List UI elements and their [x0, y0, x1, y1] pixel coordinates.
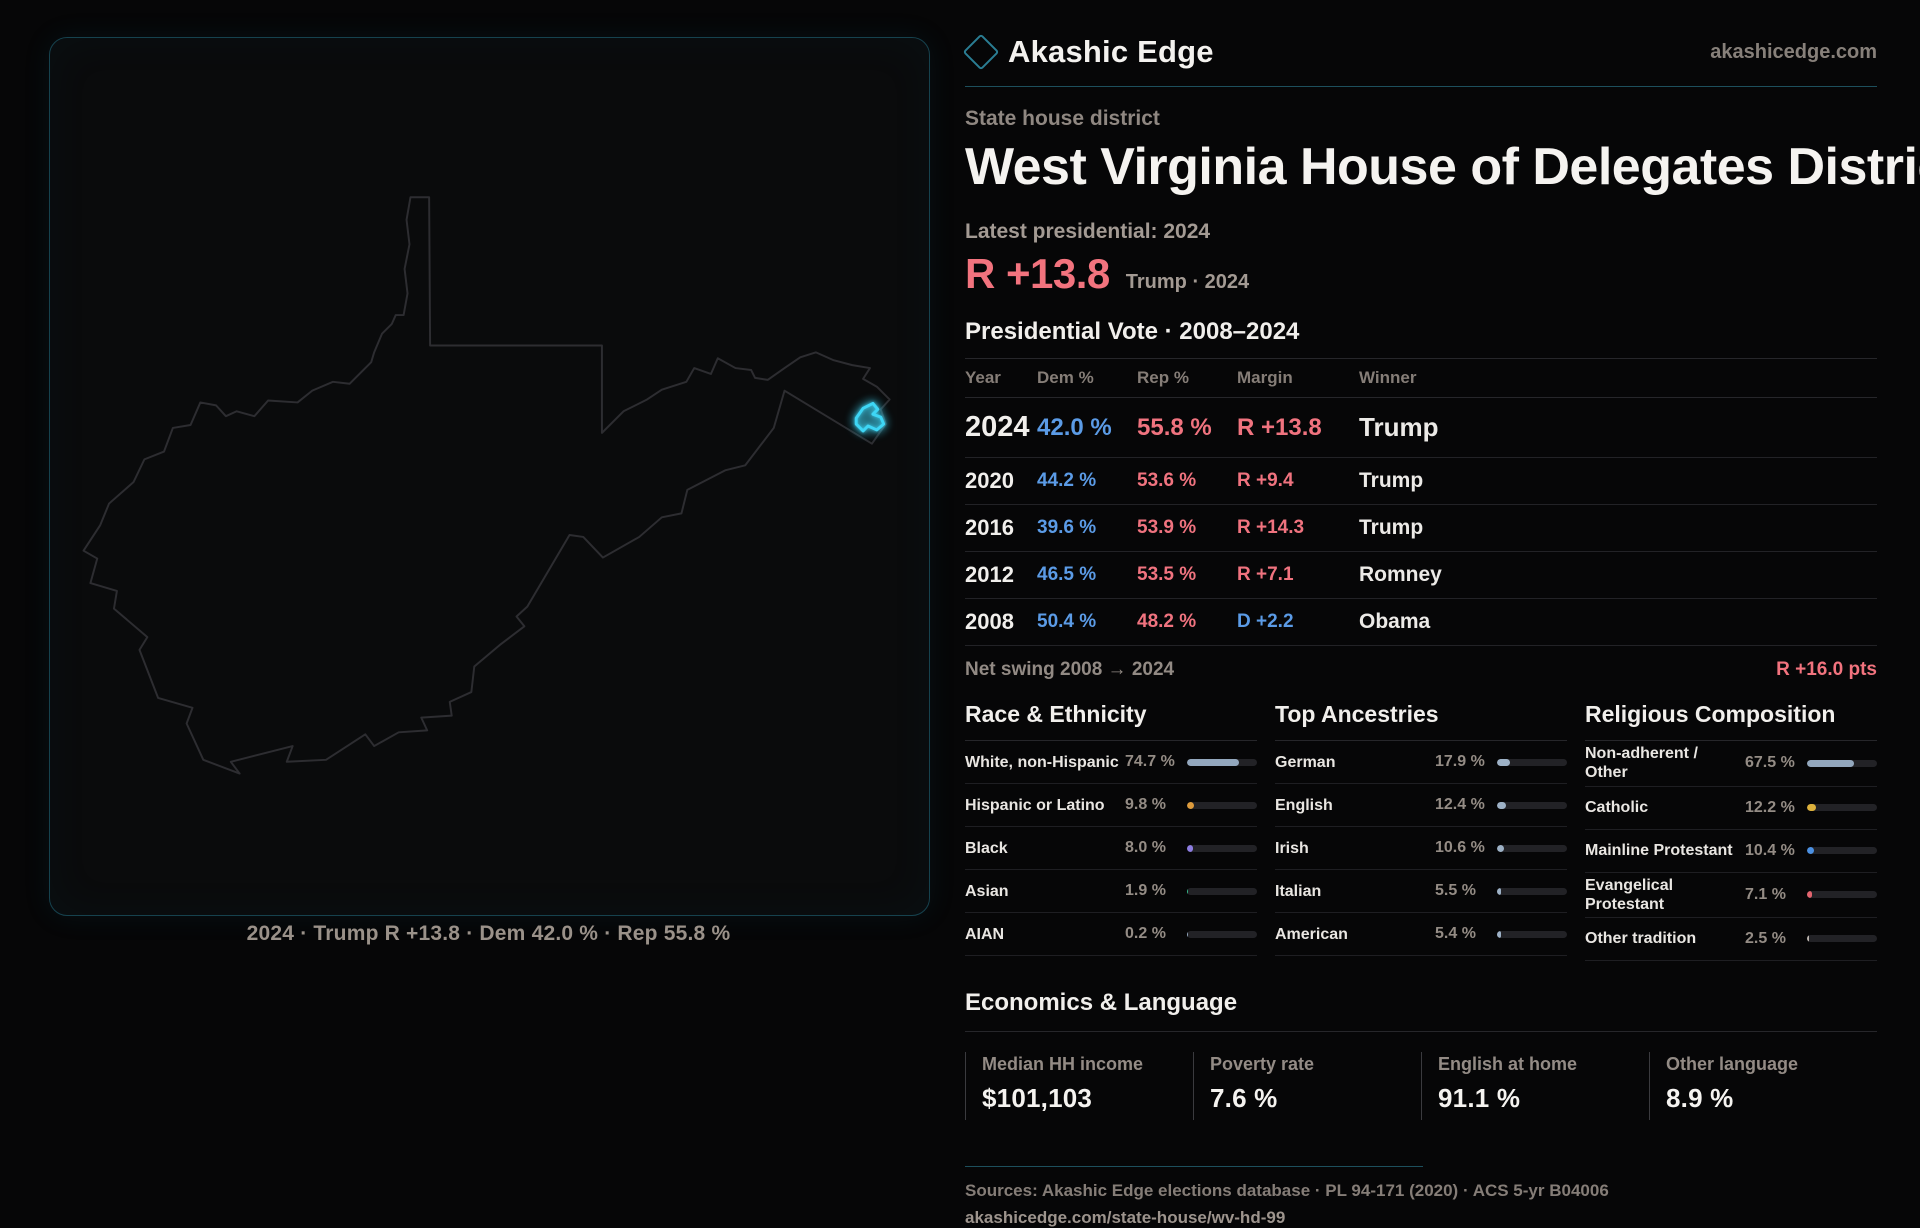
stat-value: 7.6 %	[1210, 1083, 1421, 1114]
progress-track	[1497, 759, 1567, 766]
winner-cell: Romney	[1359, 563, 1877, 587]
rep-cell: 53.5 %	[1137, 564, 1237, 586]
demo-row: Asian 1.9 %	[965, 870, 1257, 913]
demo-label: Italian	[1275, 882, 1435, 901]
margin-cell: R +9.4	[1237, 470, 1359, 492]
progress-track	[1187, 888, 1257, 895]
highlighted-district[interactable]	[856, 403, 883, 430]
table-header-row: Year Dem % Rep % Margin Winner	[965, 358, 1877, 398]
header: Akashic Edge akashicedge.com	[965, 0, 1877, 70]
col-year: Year	[965, 368, 1037, 388]
progress-track	[1187, 931, 1257, 938]
demo-row: Other tradition 2.5 %	[1585, 918, 1877, 961]
progress-fill	[1187, 759, 1239, 766]
progress-track	[1187, 802, 1257, 809]
col-rep: Rep %	[1137, 368, 1237, 388]
progress-track	[1497, 931, 1567, 938]
progress-track	[1807, 935, 1877, 942]
table-row-2024: 2024 42.0 % 55.8 % R +13.8 Trump	[965, 398, 1877, 458]
header-divider	[965, 86, 1877, 87]
table-row-2016: 2016 39.6 % 53.9 % R +14.3 Trump	[965, 505, 1877, 552]
margin-cell: D +2.2	[1237, 611, 1359, 633]
demo-value: 67.5 %	[1745, 754, 1807, 772]
margin-cell: R +14.3	[1237, 517, 1359, 539]
demo-row: Mainline Protestant 10.4 %	[1585, 830, 1877, 873]
demo-row: Catholic 12.2 %	[1585, 787, 1877, 830]
demo-label: Black	[965, 839, 1125, 858]
stat-poverty-rate: Poverty rate 7.6 %	[1193, 1052, 1421, 1120]
race-heading: Race & Ethnicity	[965, 693, 1257, 741]
demo-row: Non-adherent / Other 67.5 %	[1585, 741, 1877, 786]
latest-presidential-label: Latest presidential: 2024	[965, 220, 1920, 244]
year-cell: 2024	[965, 411, 1037, 444]
winner-cell: Trump	[1359, 412, 1877, 443]
ancestries-column: Top Ancestries German 17.9 % English 12.…	[1275, 693, 1567, 961]
stat-value: 8.9 %	[1666, 1083, 1877, 1114]
net-swing-label: Net swing 2008 → 2024	[965, 659, 1174, 681]
demographics-section: Race & Ethnicity White, non-Hispanic 74.…	[965, 693, 1877, 961]
demo-label: Asian	[965, 882, 1125, 901]
demo-row: Hispanic or Latino 9.8 %	[965, 784, 1257, 827]
progress-fill	[1497, 802, 1506, 809]
district-type-kicker: State house district	[965, 107, 1920, 131]
rep-cell: 55.8 %	[1137, 414, 1237, 442]
diamond-icon	[963, 34, 1000, 71]
progress-fill	[1807, 804, 1816, 811]
demo-value: 7.1 %	[1745, 886, 1807, 904]
state-outline	[84, 197, 890, 773]
brand-name: Akashic Edge	[1008, 34, 1214, 70]
religion-column: Religious Composition Non-adherent / Oth…	[1585, 693, 1877, 961]
demo-row: Irish 10.6 %	[1275, 827, 1567, 870]
margin-cell: R +7.1	[1237, 564, 1359, 586]
dem-cell: 46.5 %	[1037, 564, 1137, 586]
stat-value: 91.1 %	[1438, 1083, 1649, 1114]
demo-value: 10.4 %	[1745, 842, 1807, 860]
progress-track	[1807, 847, 1877, 854]
demo-label: American	[1275, 925, 1435, 944]
progress-fill	[1807, 760, 1854, 767]
demo-value: 74.7 %	[1125, 753, 1187, 771]
margin-cell: R +13.8	[1237, 414, 1359, 442]
rep-cell: 53.9 %	[1137, 517, 1237, 539]
religion-heading: Religious Composition	[1585, 693, 1877, 741]
dem-cell: 39.6 %	[1037, 517, 1137, 539]
dem-cell: 44.2 %	[1037, 470, 1137, 492]
col-winner: Winner	[1359, 368, 1877, 388]
economics-heading: Economics & Language	[965, 989, 1877, 1032]
margin-note: Trump · 2024	[1126, 271, 1249, 294]
race-ethnicity-column: Race & Ethnicity White, non-Hispanic 74.…	[965, 693, 1257, 961]
col-dem: Dem %	[1037, 368, 1137, 388]
progress-fill	[1497, 759, 1510, 766]
table-row-2012: 2012 46.5 % 53.5 % R +7.1 Romney	[965, 552, 1877, 599]
winner-cell: Obama	[1359, 610, 1877, 634]
progress-fill	[1807, 847, 1814, 854]
stat-label: English at home	[1438, 1054, 1649, 1075]
progress-track	[1497, 845, 1567, 852]
demo-label: Irish	[1275, 839, 1435, 858]
demo-value: 2.5 %	[1745, 930, 1807, 948]
margin-value: R +13.8	[965, 250, 1110, 298]
rep-cell: 48.2 %	[1137, 611, 1237, 633]
map-caption: 2024 · Trump R +13.8 · Dem 42.0 % · Rep …	[49, 922, 928, 946]
dem-cell: 50.4 %	[1037, 611, 1137, 633]
demo-value: 0.2 %	[1125, 925, 1187, 943]
demo-label: Catholic	[1585, 798, 1745, 817]
demo-value: 9.8 %	[1125, 796, 1187, 814]
progress-fill	[1807, 935, 1809, 942]
progress-track	[1807, 760, 1877, 767]
progress-fill	[1187, 802, 1194, 809]
progress-fill	[1497, 845, 1504, 852]
stat-other-language: Other language 8.9 %	[1649, 1052, 1877, 1120]
stat-label: Other language	[1666, 1054, 1877, 1075]
demo-value: 5.5 %	[1435, 882, 1497, 900]
stat-median-income: Median HH income $101,103	[965, 1052, 1193, 1120]
progress-fill	[1187, 845, 1193, 852]
winner-cell: Trump	[1359, 516, 1877, 540]
progress-track	[1807, 804, 1877, 811]
site-url[interactable]: akashicedge.com	[1710, 41, 1877, 64]
vote-table-heading: Presidential Vote · 2008–2024	[965, 318, 1920, 346]
demo-row: Black 8.0 %	[965, 827, 1257, 870]
demo-row: English 12.4 %	[1275, 784, 1567, 827]
demo-label: Non-adherent / Other	[1585, 744, 1745, 782]
demo-value: 10.6 %	[1435, 839, 1497, 857]
demo-row: Italian 5.5 %	[1275, 870, 1567, 913]
demo-value: 5.4 %	[1435, 925, 1497, 943]
progress-track	[1497, 802, 1567, 809]
demo-label: Other tradition	[1585, 929, 1745, 948]
demo-label: White, non-Hispanic	[965, 753, 1125, 772]
winner-cell: Trump	[1359, 469, 1877, 493]
progress-fill	[1497, 931, 1501, 938]
district-map-panel	[49, 37, 930, 916]
progress-track	[1187, 845, 1257, 852]
year-cell: 2020	[965, 468, 1037, 494]
stat-english-at-home: English at home 91.1 %	[1421, 1052, 1649, 1120]
dem-cell: 42.0 %	[1037, 414, 1137, 442]
demo-row: German 17.9 %	[1275, 741, 1567, 784]
demo-row: White, non-Hispanic 74.7 %	[965, 741, 1257, 784]
net-swing-row: Net swing 2008 → 2024 R +16.0 pts	[965, 646, 1877, 685]
demo-label: Mainline Protestant	[1585, 841, 1745, 860]
progress-fill	[1187, 888, 1188, 895]
footer-divider	[965, 1166, 1423, 1167]
demo-value: 12.2 %	[1745, 799, 1807, 817]
progress-fill	[1807, 891, 1812, 898]
table-row-2020: 2020 44.2 % 53.6 % R +9.4 Trump	[965, 458, 1877, 505]
demo-value: 17.9 %	[1435, 753, 1497, 771]
demo-value: 12.4 %	[1435, 796, 1497, 814]
headline-margin: R +13.8 Trump · 2024	[965, 250, 1920, 298]
year-cell: 2008	[965, 609, 1037, 635]
stat-value: $101,103	[982, 1083, 1193, 1114]
year-cell: 2012	[965, 562, 1037, 588]
stat-label: Poverty rate	[1210, 1054, 1421, 1075]
demo-label: English	[1275, 796, 1435, 815]
progress-track	[1187, 759, 1257, 766]
economics-stats: Median HH income $101,103 Poverty rate 7…	[965, 1052, 1877, 1120]
progress-track	[1497, 888, 1567, 895]
col-margin: Margin	[1237, 368, 1359, 388]
rep-cell: 53.6 %	[1137, 470, 1237, 492]
west-virginia-map	[58, 168, 922, 792]
demo-value: 1.9 %	[1125, 882, 1187, 900]
demo-row: AIAN 0.2 %	[965, 913, 1257, 956]
page-title: West Virginia House of Delegates Distric…	[965, 139, 1920, 196]
progress-track	[1807, 891, 1877, 898]
demo-label: German	[1275, 753, 1435, 772]
presidential-vote-table: Year Dem % Rep % Margin Winner 2024 42.0…	[965, 358, 1877, 646]
demo-value: 8.0 %	[1125, 839, 1187, 857]
demo-row: American 5.4 %	[1275, 913, 1567, 956]
progress-fill	[1497, 888, 1501, 895]
district-data-card: Akashic Edge akashicedge.com State house…	[965, 0, 1920, 1228]
ancestries-heading: Top Ancestries	[1275, 693, 1567, 741]
demo-label: Evangelical Protestant	[1585, 876, 1745, 914]
demo-label: Hispanic or Latino	[965, 796, 1125, 815]
demo-label: AIAN	[965, 925, 1125, 944]
net-swing-value: R +16.0 pts	[1776, 659, 1877, 681]
stat-label: Median HH income	[982, 1054, 1193, 1075]
sources-line: Sources: Akashic Edge elections database…	[965, 1181, 1920, 1201]
year-cell: 2016	[965, 515, 1037, 541]
demo-row: Evangelical Protestant 7.1 %	[1585, 873, 1877, 918]
permalink[interactable]: akashicedge.com/state-house/wv-hd-99	[965, 1208, 1920, 1228]
page-root: { "header": { "brand": "Akashic Edge", "…	[0, 0, 1920, 1080]
table-row-2008: 2008 50.4 % 48.2 % D +2.2 Obama	[965, 599, 1877, 646]
